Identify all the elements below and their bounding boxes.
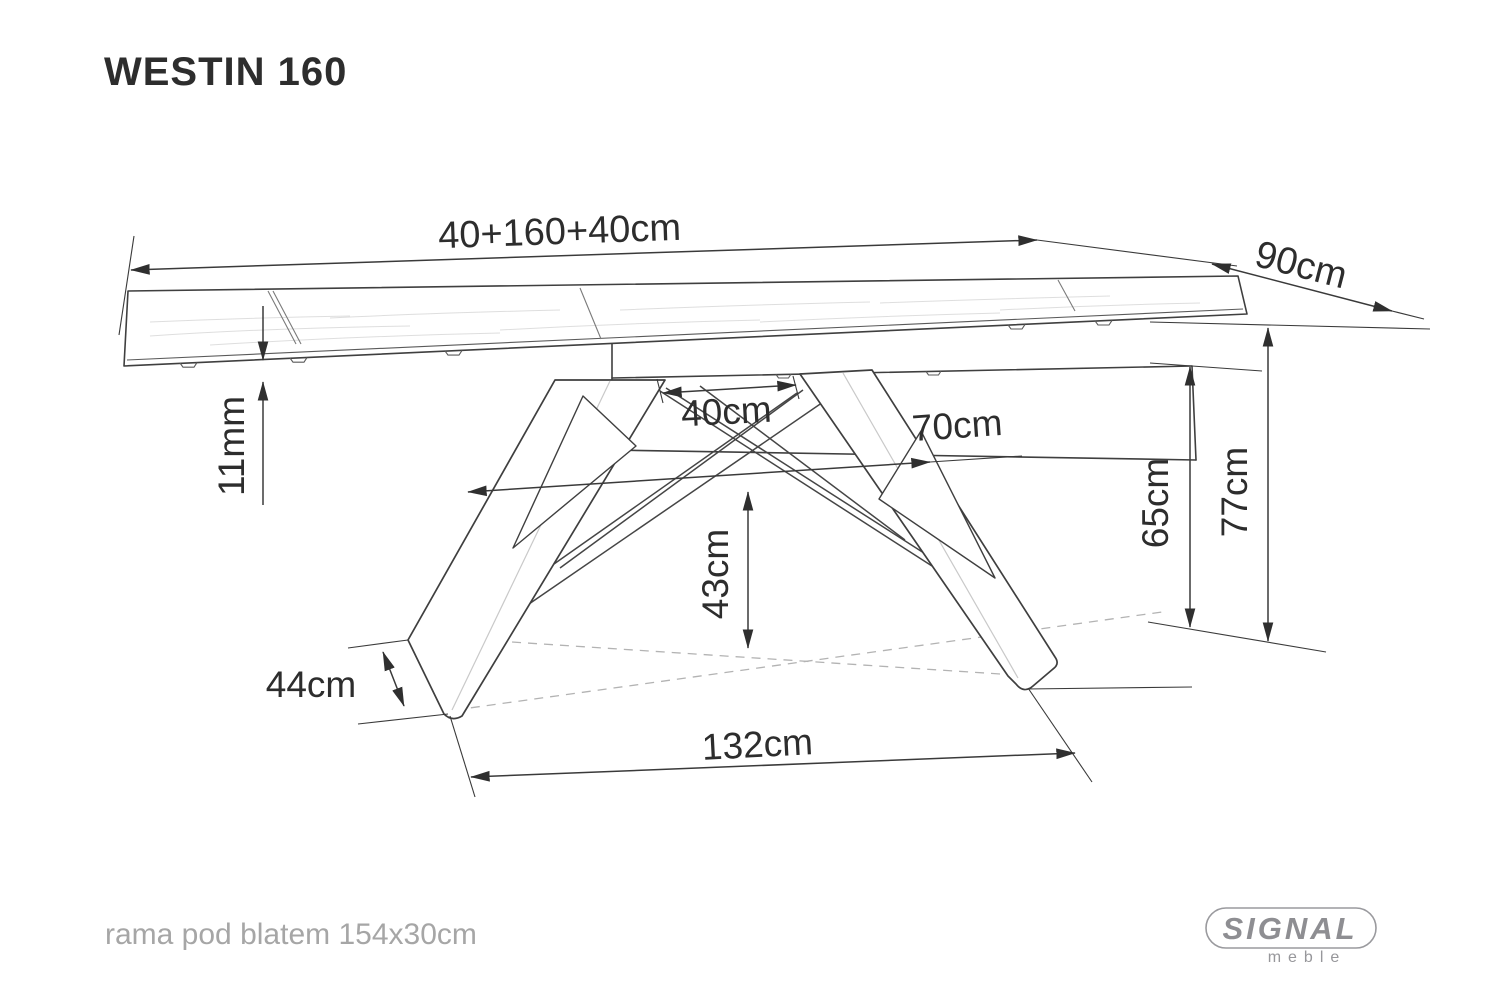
tabletop-slab bbox=[124, 276, 1247, 367]
page-title: WESTIN 160 bbox=[104, 50, 347, 94]
dim-top-thickness: 11mm bbox=[211, 306, 263, 505]
brand-logo: SIGNAL meble bbox=[1206, 908, 1376, 966]
dim-base-span: 132cm bbox=[450, 688, 1092, 797]
marble-texture bbox=[150, 296, 1200, 345]
dim-foot-label: 44cm bbox=[266, 664, 356, 705]
dim-top-thickness-label: 11mm bbox=[211, 396, 252, 496]
dim-top-length-label: 40+160+40cm bbox=[437, 207, 681, 257]
westin-table-drawing: WESTIN 160 bbox=[0, 0, 1500, 1000]
dim-frame-height-label: 65cm bbox=[1135, 458, 1176, 548]
dim-clearance: 43cm bbox=[695, 492, 748, 648]
dim-leg-span-label: 70cm bbox=[911, 402, 1004, 449]
floor-level-lines bbox=[1026, 622, 1326, 689]
dim-leaf-label: 40cm bbox=[680, 389, 773, 435]
technical-drawing-page: WESTIN 160 bbox=[0, 0, 1500, 1000]
dim-depth: 90cm bbox=[1150, 233, 1430, 329]
dim-base-span-label: 132cm bbox=[701, 721, 814, 768]
dim-clearance-label: 43cm bbox=[695, 529, 736, 619]
dim-table-height-label: 77cm bbox=[1214, 447, 1255, 537]
frame-note: rama pod blatem 154x30cm bbox=[105, 918, 477, 951]
logo-sub-text: meble bbox=[1268, 949, 1347, 966]
logo-brand-text: SIGNAL bbox=[1222, 911, 1357, 946]
left-leg-blade bbox=[408, 380, 665, 719]
dim-leaf: 40cm bbox=[657, 376, 799, 434]
dim-table-height: 77cm bbox=[1214, 328, 1268, 641]
